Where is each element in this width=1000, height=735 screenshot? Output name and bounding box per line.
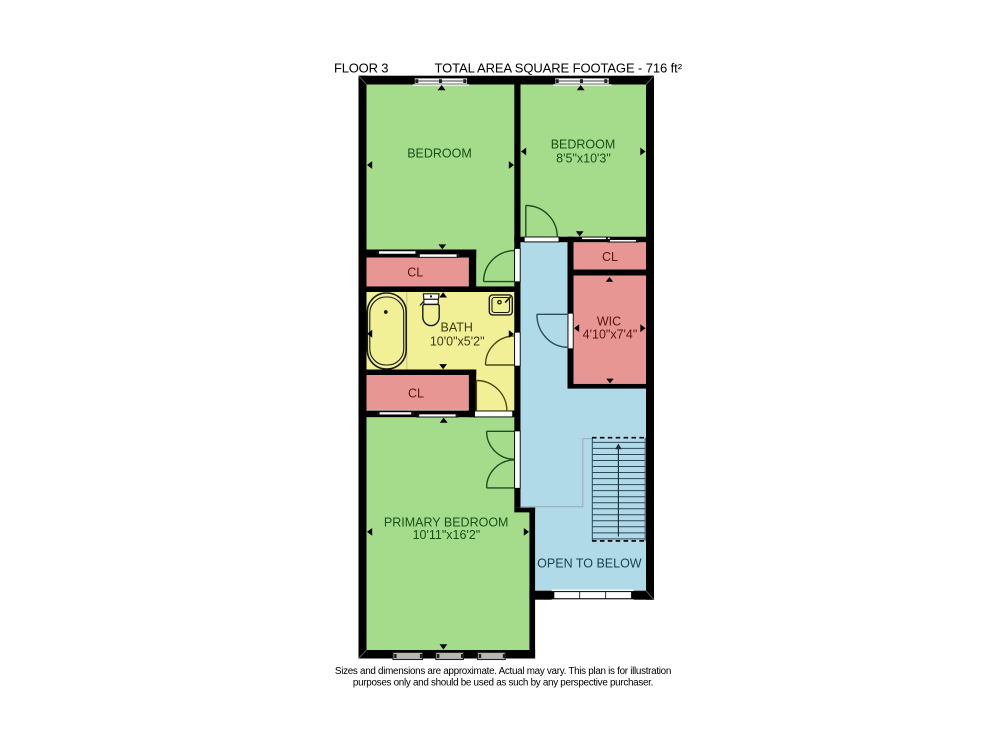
svg-text:OPEN TO BELOW: OPEN TO BELOW: [537, 556, 642, 570]
svg-text:CL: CL: [408, 387, 424, 401]
svg-text:FLOOR 3: FLOOR 3: [334, 60, 388, 75]
svg-text:Sizes and dimensions are appro: Sizes and dimensions are approximate. Ac…: [335, 666, 671, 677]
svg-text:10'0"x5'2": 10'0"x5'2": [430, 334, 485, 348]
svg-text:BEDROOM: BEDROOM: [407, 146, 472, 160]
svg-text:WIC: WIC: [597, 314, 621, 328]
svg-text:10'11"x16'2": 10'11"x16'2": [413, 528, 481, 542]
svg-text:BEDROOM: BEDROOM: [551, 138, 616, 152]
svg-text:8'5"x10'3": 8'5"x10'3": [556, 151, 611, 165]
svg-text:TOTAL AREA SQUARE FOOTAGE - 71: TOTAL AREA SQUARE FOOTAGE - 716 ft²: [435, 60, 683, 75]
svg-text:purposes only and should be us: purposes only and should be used as such…: [353, 677, 653, 688]
svg-text:CL: CL: [602, 250, 618, 264]
svg-text:BATH: BATH: [440, 320, 472, 334]
svg-text:CL: CL: [407, 265, 423, 279]
svg-text:4'10"x7'4": 4'10"x7'4": [583, 327, 638, 341]
